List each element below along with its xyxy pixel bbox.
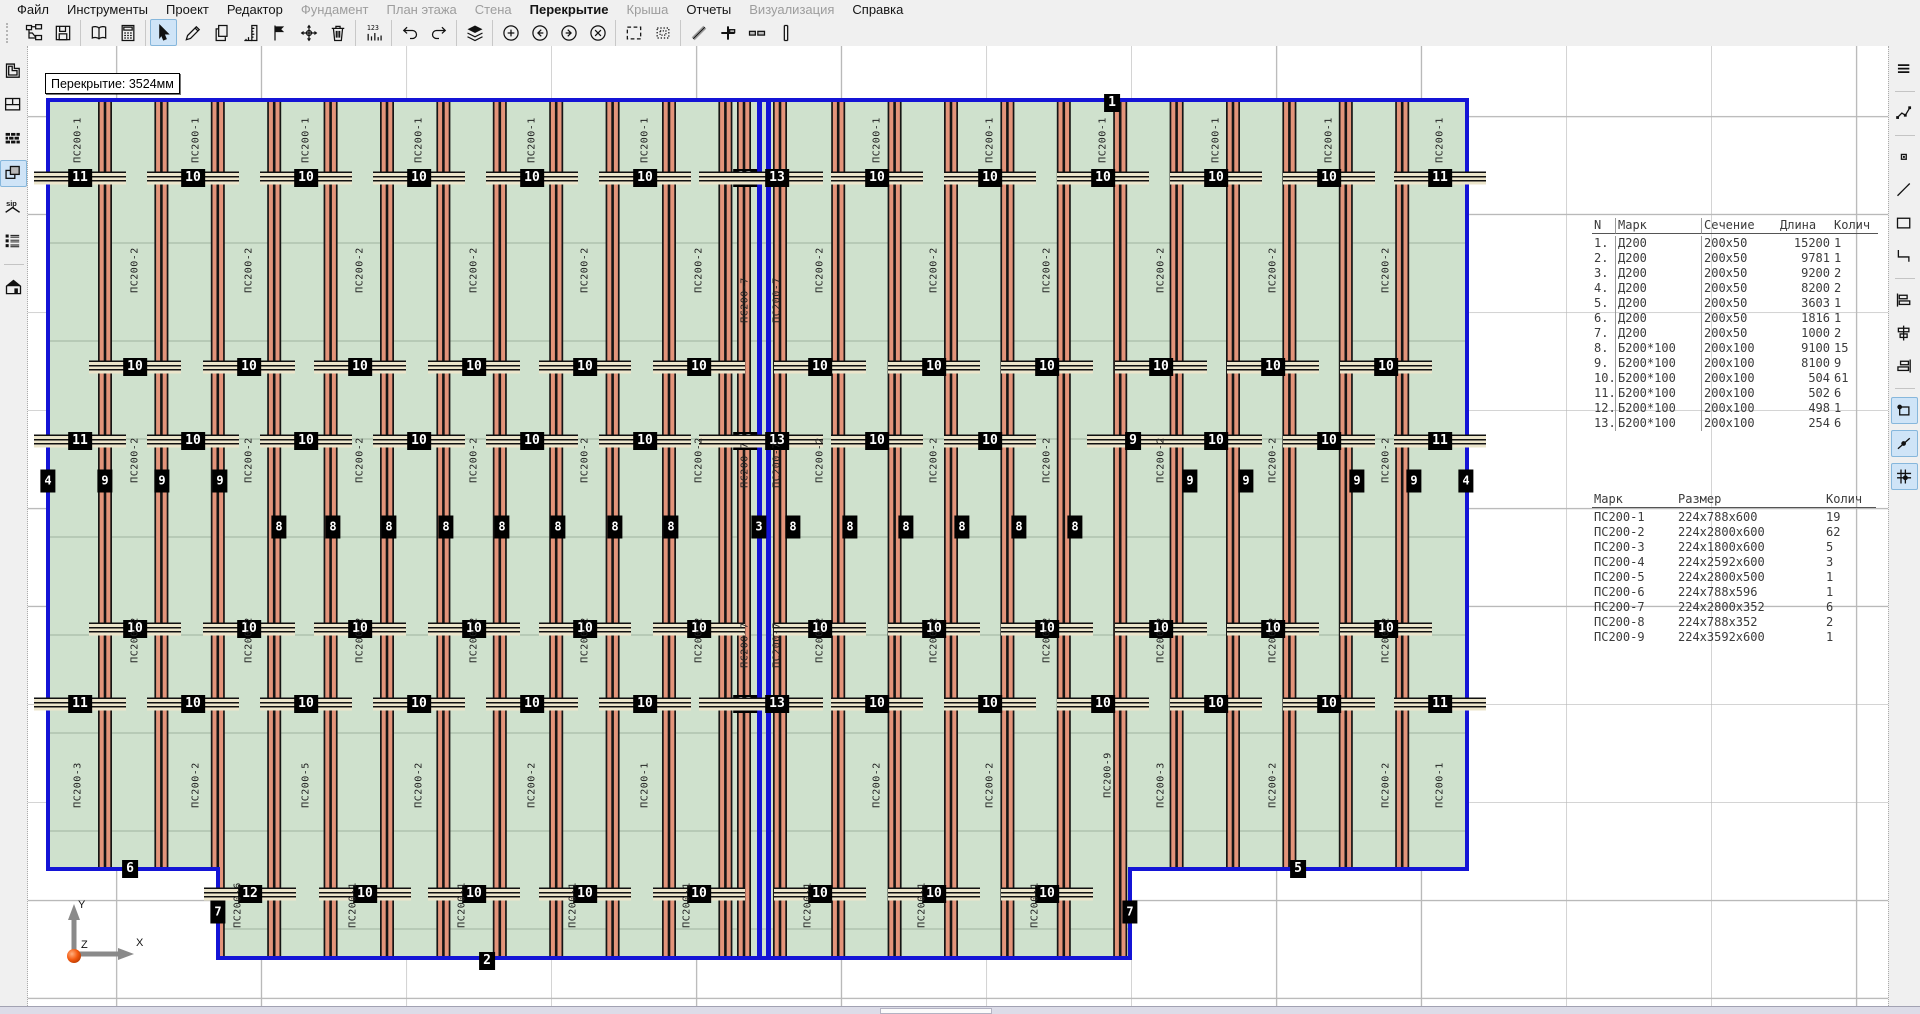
menu-editor[interactable]: Редактор [218, 1, 292, 18]
close-circle-icon [588, 23, 608, 43]
table-cell: 224x788x600 [1676, 510, 1824, 525]
joint-badge-9: 9 [154, 470, 169, 493]
point-icon [1894, 147, 1915, 168]
table-cell: Б200*100 [1616, 416, 1702, 431]
panel-label: ПС200-2 [1268, 617, 1279, 663]
snap-line-icon [1894, 433, 1915, 454]
panel-label: ПС200-5 [301, 762, 312, 808]
table-cell: 9200 [1778, 266, 1832, 281]
menu-visualization[interactable]: Визуализация [740, 1, 843, 18]
foundation-button[interactable] [0, 58, 27, 85]
joint-badge-8: 8 [1067, 516, 1082, 539]
joint-badge-3: 3 [751, 516, 766, 539]
snap-corner-button[interactable] [1891, 397, 1918, 424]
line-icon [1894, 180, 1915, 201]
toolbar-group [616, 20, 681, 46]
horizontal-scrollbar[interactable] [0, 1006, 1920, 1014]
table-cell: 6 [1824, 600, 1876, 615]
table-cell: 504 [1778, 371, 1832, 386]
walls-button[interactable] [0, 126, 27, 153]
wall-profile-icon [776, 23, 796, 43]
table-cell: 2 [1832, 326, 1878, 341]
table-cell: Д200 [1616, 266, 1702, 281]
save-icon [53, 23, 73, 43]
table-cell: 8100 [1778, 356, 1832, 371]
panel-label: ПС200-1 [917, 882, 928, 928]
panel-label: ПС200-2 [355, 437, 366, 483]
table-cell: 224x2592x600 [1676, 555, 1824, 570]
table-header: Длина [1778, 218, 1832, 234]
joint-badge-10: 10 [633, 695, 657, 713]
table-cell: ПС200-3 [1592, 540, 1676, 555]
table-cell: 1 [1832, 236, 1878, 251]
panel-label: ПС200-1 [1030, 882, 1041, 928]
numbering-button[interactable]: 123 [360, 19, 387, 46]
slab-icon [3, 163, 24, 184]
table-cell: 224x2800x352 [1676, 600, 1824, 615]
sidebar-separator [1895, 388, 1915, 389]
toolbar-group [493, 20, 616, 46]
menu-foundation[interactable]: Фундамент [292, 1, 378, 18]
table-cell: 200x50 [1702, 326, 1778, 341]
joint-badge-10: 10 [1035, 358, 1059, 376]
panel-label: ПС200-2 [1268, 247, 1279, 293]
joint-badge-10: 10 [294, 169, 318, 187]
joint-badge-10: 10 [1261, 358, 1285, 376]
align-middle-button[interactable] [1891, 320, 1918, 347]
joint-badge-9: 9 [97, 470, 112, 493]
table-cell: ПС200-5 [1592, 570, 1676, 585]
table-cell: 3 [1824, 555, 1876, 570]
joint-badge-10: 10 [520, 695, 544, 713]
table-cell: 200x50 [1702, 236, 1778, 251]
floorplan-button[interactable] [0, 92, 27, 119]
panel-label: ПС200-1 [457, 882, 468, 928]
nav-forward-button[interactable] [555, 19, 582, 46]
joint-badge-11: 11 [68, 169, 92, 187]
joint-badge-8: 8 [325, 516, 340, 539]
menu-help[interactable]: Справка [843, 1, 912, 18]
section-plus-icon [718, 23, 738, 43]
table-cell: Д200 [1616, 326, 1702, 341]
house-3d-icon [3, 277, 24, 298]
align-left-button[interactable] [1891, 287, 1918, 314]
panel-label: ПС200-7 [772, 277, 783, 323]
panel-label: ПС200-2 [469, 437, 480, 483]
joint-badge-2: 2 [479, 952, 495, 970]
table-cell: 6 [1832, 416, 1878, 431]
joint-badge-10: 10 [978, 169, 1002, 187]
joint-badge-9: 9 [1182, 470, 1197, 493]
panel-label: ПС200-2 [815, 617, 826, 663]
origin-ball [67, 949, 81, 963]
joint-badge-10: 10 [1204, 169, 1228, 187]
table-cell: 1816 [1778, 311, 1832, 326]
table-cell: 224x2800x600 [1676, 525, 1824, 540]
table-cell: 19 [1824, 510, 1876, 525]
toolbar-group [392, 20, 457, 46]
panel-label: ПС200-1 [1324, 117, 1335, 163]
segments-icon [747, 23, 767, 43]
joint-badge-10: 10 [237, 358, 261, 376]
table-cell: 200x50 [1702, 296, 1778, 311]
joint-badge-9: 9 [1406, 470, 1421, 493]
joint-badge-10: 10 [865, 695, 889, 713]
layers-button[interactable] [461, 19, 488, 46]
slab-button[interactable] [0, 160, 27, 187]
table-cell: Б200*100 [1616, 341, 1702, 356]
menu-bar: ФайлИнструментыПроектРедакторФундаментПл… [0, 0, 1920, 19]
joint-badge-10: 10 [1091, 695, 1115, 713]
panel-label: ПС200-2 [527, 762, 538, 808]
panel-label: ПС200-2 [130, 617, 141, 663]
joint-badge-10: 10 [181, 432, 205, 450]
menu-wall[interactable]: Стена [466, 1, 521, 18]
polyline-button[interactable] [1891, 100, 1918, 127]
panel-label: ПС200-2 [872, 762, 883, 808]
panel-label: ПС200-1 [73, 117, 84, 163]
table-cell: 200x50 [1702, 311, 1778, 326]
panel-label: ПС200-2 [929, 617, 940, 663]
panel-label: ПС200-1 [301, 117, 312, 163]
panel-spec-table: МаркРазмерКоличПС200-1224x788x60019ПС200… [1592, 492, 1876, 645]
joint-badge-10: 10 [1317, 169, 1341, 187]
joint-badge-11: 11 [1428, 432, 1452, 450]
table-header: Марк [1592, 492, 1676, 508]
joint-badge-1: 1 [1104, 94, 1120, 112]
joint-badge-8: 8 [607, 516, 622, 539]
pencil-button[interactable] [179, 19, 206, 46]
align-left-icon [1894, 290, 1915, 311]
table-cell: 9 [1832, 356, 1878, 371]
table-header: Сечение [1702, 218, 1778, 234]
panel-label: ПС200-1 [682, 882, 693, 928]
house-3d-button[interactable] [0, 274, 27, 301]
joint-badge-10: 10 [1374, 358, 1398, 376]
snap-line-button[interactable] [1891, 430, 1918, 457]
joint-badge-13: 13 [765, 695, 789, 713]
layers-icon [465, 23, 485, 43]
panel-label: ПС200-1 [1098, 117, 1109, 163]
nav-forward-icon [559, 23, 579, 43]
snap-grid-button[interactable] [1891, 463, 1918, 490]
walls-icon [3, 129, 24, 150]
table-cell: 2 [1832, 266, 1878, 281]
book-button[interactable] [85, 19, 112, 46]
joint-badge-10: 10 [1091, 169, 1115, 187]
nav-back-icon [530, 23, 550, 43]
table-cell: 3. [1592, 266, 1616, 281]
panel-label: ПС200-2 [694, 247, 705, 293]
project-tree-button[interactable] [20, 19, 47, 46]
menu-icon [1894, 59, 1915, 80]
align-middle-icon [1894, 323, 1915, 344]
scrollbar-thumb[interactable] [880, 1008, 992, 1014]
toolbar-drag-handle[interactable] [6, 23, 12, 43]
redo-icon [429, 23, 449, 43]
table-cell: 1 [1824, 630, 1876, 645]
svg-text:123: 123 [366, 24, 378, 32]
table-cell: 224x2800x500 [1676, 570, 1824, 585]
select-region-button[interactable] [649, 19, 676, 46]
measurement-tooltip: Перекрытие: 3524мм [45, 73, 180, 94]
pencil-icon [183, 23, 203, 43]
table-cell: 13. [1592, 416, 1616, 431]
measure-button[interactable] [685, 19, 712, 46]
menu-slab[interactable]: Перекрытие [521, 1, 618, 18]
joint-badge-4: 4 [40, 470, 55, 493]
table-cell: 2 [1824, 615, 1876, 630]
table-cell: ПС200-8 [1592, 615, 1676, 630]
rectangle-button[interactable] [1891, 210, 1918, 237]
menu-reports[interactable]: Отчеты [677, 1, 740, 18]
line-button[interactable] [1891, 177, 1918, 204]
panel-label: ПС200-2 [1042, 617, 1053, 663]
panel-label: ПС200-2 [580, 617, 591, 663]
joint-badge-10: 10 [181, 169, 205, 187]
joint-badge-9: 9 [1349, 470, 1364, 493]
table-cell: 4. [1592, 281, 1616, 296]
joint-badge-10: 10 [978, 695, 1002, 713]
joint-badge-8: 8 [663, 516, 678, 539]
panel-label: ПС200-1 [1211, 117, 1222, 163]
sidebar-separator [1895, 135, 1915, 136]
joint-badge-7: 7 [1122, 901, 1137, 924]
joint-badge-10: 10 [181, 695, 205, 713]
panel-label: ПС200-1 [568, 882, 579, 928]
joint-badge-9: 9 [1125, 432, 1141, 450]
table-cell: ПС200-7 [1592, 600, 1676, 615]
joint-badge-8: 8 [954, 516, 969, 539]
panel-label: ПС200-7 [772, 442, 783, 488]
table-cell: 3603 [1778, 296, 1832, 311]
table-cell: 15 [1832, 341, 1878, 356]
joint-badge-8: 8 [842, 516, 857, 539]
snap-corner-icon [1894, 400, 1915, 421]
table-cell: 9100 [1778, 341, 1832, 356]
joint-badge-6: 6 [122, 860, 138, 878]
toolbar-group [16, 20, 81, 46]
panel-label: ПС200-2 [130, 437, 141, 483]
copy-button[interactable] [208, 19, 235, 46]
toolbar-group [457, 20, 493, 46]
joint-badge-10: 10 [633, 432, 657, 450]
calculator-button[interactable] [114, 19, 141, 46]
table-cell: 254 [1778, 416, 1832, 431]
panel-label: ПС200-2 [580, 247, 591, 293]
panel-label: ПС200-9 [1103, 752, 1114, 798]
table-header: Колич [1832, 218, 1878, 234]
joint-badge-10: 10 [348, 358, 372, 376]
panel-label: ПС200-2 [580, 437, 591, 483]
right-toolbar [1888, 46, 1920, 1006]
toolbar-group [681, 20, 803, 46]
joint-badge-10: 10 [808, 358, 832, 376]
table-cell: 8. [1592, 341, 1616, 356]
section-plus-button[interactable] [714, 19, 741, 46]
x-arrowhead [118, 948, 134, 960]
left-toolbar: sip [0, 46, 28, 1006]
segments-button[interactable] [743, 19, 770, 46]
joint-badge-10: 10 [520, 169, 544, 187]
table-cell: 200x50 [1702, 251, 1778, 266]
joint-badge-8: 8 [785, 516, 800, 539]
point-button[interactable] [1891, 144, 1918, 171]
table-cell: 1000 [1778, 326, 1832, 341]
calculator-icon [118, 23, 138, 43]
select-rect-button[interactable] [620, 19, 647, 46]
table-cell: 224x788x596 [1676, 585, 1824, 600]
table-cell: 11. [1592, 386, 1616, 401]
table-cell: 224x3592x600 [1676, 630, 1824, 645]
joint-badge-10: 10 [407, 432, 431, 450]
panel-label: ПС200-2 [929, 437, 940, 483]
table-cell: Б200*100 [1616, 371, 1702, 386]
move-button[interactable] [295, 19, 322, 46]
redo-button[interactable] [425, 19, 452, 46]
table-header: Колич [1824, 492, 1876, 508]
toolbar: 123 [0, 19, 1920, 46]
table-cell: Д200 [1616, 281, 1702, 296]
align-right-button[interactable] [1891, 353, 1918, 380]
joint-badge-10: 10 [573, 358, 597, 376]
select-region-icon [653, 23, 673, 43]
panel-label: ПС200-2 [694, 617, 705, 663]
axes-widget: Y X Z [54, 894, 150, 980]
table-cell: 2 [1832, 281, 1878, 296]
panel-label: ПС200-2 [244, 437, 255, 483]
table-cell: 5 [1824, 540, 1876, 555]
table-cell: 12. [1592, 401, 1616, 416]
ruler-button[interactable] [237, 19, 264, 46]
panel-label: ПС200-1 [348, 882, 359, 928]
sidebar-separator [1895, 278, 1915, 279]
menu-floor-plan[interactable]: План этажа [378, 1, 466, 18]
zoom-in-icon [501, 23, 521, 43]
table-cell: Б200*100 [1616, 356, 1702, 371]
table-cell: 200x100 [1702, 401, 1778, 416]
foundation-icon [3, 61, 24, 82]
table-cell: 224x788x352 [1676, 615, 1824, 630]
table-header: Размер [1676, 492, 1824, 508]
sidebar-separator [1895, 91, 1915, 92]
joint-badge-9: 9 [212, 470, 227, 493]
measure-icon [689, 23, 709, 43]
joint-badge-10: 10 [922, 358, 946, 376]
table-cell: 200x100 [1702, 386, 1778, 401]
panel-label: ПС200-2 [1381, 617, 1392, 663]
zoom-in-button[interactable] [497, 19, 524, 46]
panel-label: ПС200-2 [1381, 437, 1392, 483]
corner-button[interactable] [1891, 243, 1918, 270]
numbering-icon: 123 [364, 23, 384, 43]
panel-label: ПС200-1 [872, 117, 883, 163]
panel-label: ПС200-3 [1156, 762, 1167, 808]
report-list-button[interactable] [0, 228, 27, 255]
joint-badge-11: 11 [1428, 695, 1452, 713]
panel-label: ПС200-1 [1435, 762, 1446, 808]
joint-badge-11: 11 [68, 695, 92, 713]
table-cell: 62 [1824, 525, 1876, 540]
table-cell: 224x1800x600 [1676, 540, 1824, 555]
polyline-icon [1894, 103, 1915, 124]
panel-label: ПС200-1 [414, 117, 425, 163]
joint-badge-8: 8 [438, 516, 453, 539]
joint-badge-10: 10 [978, 432, 1002, 450]
table-cell: Д200 [1616, 236, 1702, 251]
flag-button[interactable] [266, 19, 293, 46]
table-cell: 200x50 [1702, 266, 1778, 281]
menu-tools[interactable]: Инструменты [58, 1, 157, 18]
menu-roof[interactable]: Крыша [618, 1, 678, 18]
cursor-button[interactable] [150, 19, 177, 46]
lumber-cut-list-table: NМаркСечениеДлинаКолич1.Д200200x50152001… [1592, 218, 1878, 431]
table-cell: Д200 [1616, 296, 1702, 311]
panel-label: ПС200-2 [1156, 617, 1167, 663]
joint-badge-10: 10 [407, 695, 431, 713]
toolbar-group [146, 20, 356, 46]
corner-icon [1894, 246, 1915, 267]
align-right-icon [1894, 356, 1915, 377]
joint-badge-13: 13 [765, 169, 789, 187]
nav-back-button[interactable] [526, 19, 553, 46]
table-cell: ПС200-9 [1592, 630, 1676, 645]
joint-badge-10: 10 [123, 358, 147, 376]
floorplan-icon [3, 95, 24, 116]
menu-project[interactable]: Проект [157, 1, 218, 18]
flag-icon [270, 23, 290, 43]
panel-label: ПС200-7 [740, 442, 751, 488]
drawing-canvas[interactable]: 1110101010101313101010101011101010101010… [28, 46, 1888, 1006]
panel-label: ПС200-2 [191, 762, 202, 808]
wall-profile-button[interactable] [772, 19, 799, 46]
select-rect-icon [624, 23, 644, 43]
close-circle-button[interactable] [584, 19, 611, 46]
trash-button[interactable] [324, 19, 351, 46]
joint-badge-7: 7 [210, 901, 225, 924]
table-cell: 9. [1592, 356, 1616, 371]
table-cell: 1. [1592, 236, 1616, 251]
toolbar-group: 123 [356, 20, 392, 46]
panel-label: ПС200-2 [1381, 762, 1392, 808]
panel-label: ПС200-1 [640, 117, 651, 163]
undo-button[interactable] [396, 19, 423, 46]
joint-badge-10: 10 [294, 695, 318, 713]
joint-badge-10: 10 [1149, 358, 1173, 376]
joint-badge-5: 5 [1290, 860, 1306, 878]
panel-label: ПС200-1 [985, 117, 996, 163]
menu-button[interactable] [1891, 56, 1918, 83]
panel-label: ПС200-2 [694, 437, 705, 483]
joint-badge-10: 10 [865, 432, 889, 450]
table-cell: Б200*100 [1616, 386, 1702, 401]
joint-badge-10: 10 [1317, 432, 1341, 450]
panel-label: ПС200-3 [73, 762, 84, 808]
table-cell: 9781 [1778, 251, 1832, 266]
joint-badge-10: 10 [462, 358, 486, 376]
table-cell: Д200 [1616, 311, 1702, 326]
joint-badge-9: 9 [1238, 470, 1253, 493]
joint-badge-8: 8 [898, 516, 913, 539]
joint-badge-11: 11 [68, 432, 92, 450]
sip-roof-button[interactable]: sip [0, 194, 27, 221]
menu-file[interactable]: Файл [8, 1, 58, 18]
save-button[interactable] [49, 19, 76, 46]
axis-label-z: Z [81, 939, 88, 951]
panel-label: ПС200-2 [1381, 247, 1392, 293]
panel-label: ПС200-2 [469, 247, 480, 293]
svg-text:sip: sip [6, 199, 17, 208]
